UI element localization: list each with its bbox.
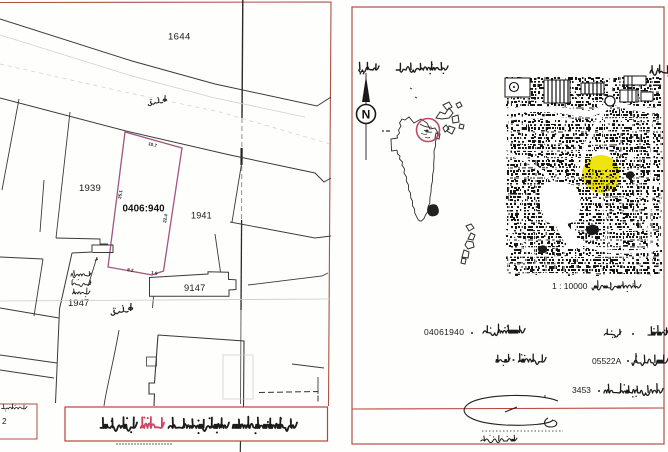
svg-text:1939: 1939 [79, 183, 101, 194]
svg-text:1947: 1947 [68, 298, 89, 309]
svg-text:1644: 1644 [168, 32, 191, 43]
svg-text:N: N [362, 108, 371, 122]
svg-text:05522A: 05522A [592, 356, 622, 366]
svg-text:2: 2 [2, 417, 7, 426]
svg-text:3453: 3453 [572, 385, 591, 395]
svg-text:1941: 1941 [191, 211, 212, 221]
svg-text:9147: 9147 [184, 283, 205, 293]
svg-text:0406:940: 0406:940 [123, 204, 166, 215]
svg-text:04061940: 04061940 [424, 327, 464, 337]
svg-text:1 : 10000: 1 : 10000 [552, 281, 588, 291]
